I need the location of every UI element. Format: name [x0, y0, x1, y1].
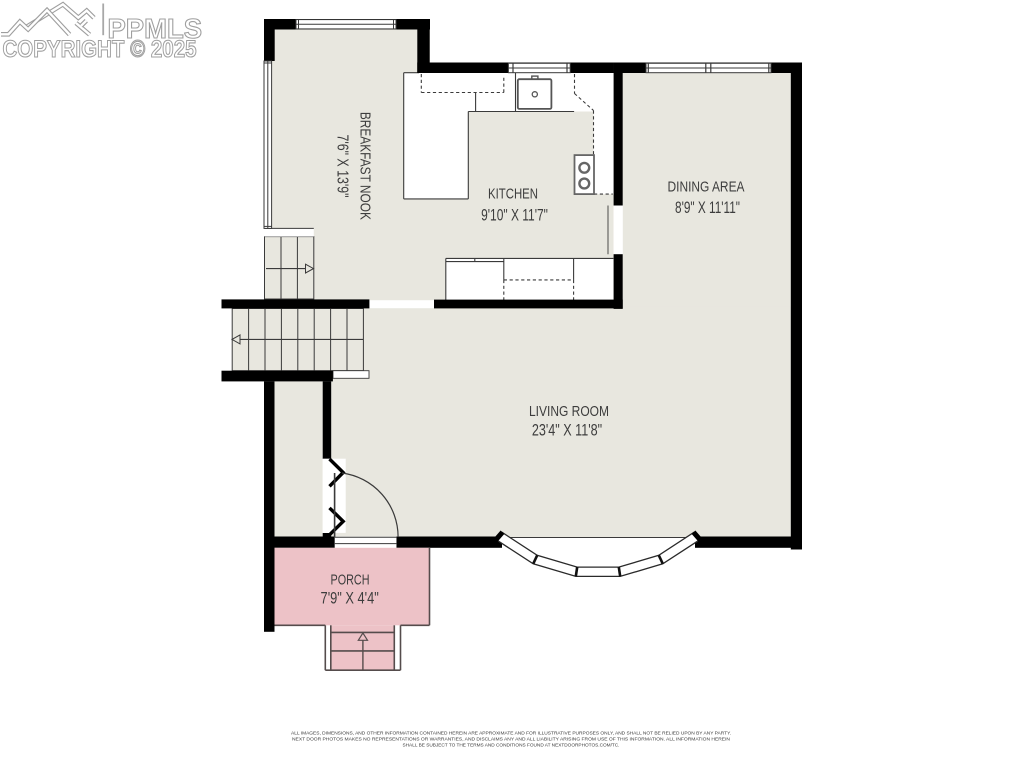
svg-text:LIVING ROOM: LIVING ROOM: [529, 403, 609, 420]
svg-text:SHALL BE SUBJECT TO THE TERMS: SHALL BE SUBJECT TO THE TERMS AND CONDIT…: [403, 743, 620, 749]
svg-text:ALL IMAGES, DIMENSIONS, AND OT: ALL IMAGES, DIMENSIONS, AND OTHER INFORM…: [291, 730, 731, 736]
svg-text:BREAKFAST NOOK: BREAKFAST NOOK: [357, 112, 374, 220]
svg-text:7'9" X 4'4": 7'9" X 4'4": [321, 590, 379, 608]
svg-text:7'6" X 13'9": 7'6" X 13'9": [334, 135, 351, 198]
svg-text:9'10" X 11'7": 9'10" X 11'7": [481, 207, 548, 225]
svg-text:COPYRIGHT © 2025: COPYRIGHT © 2025: [3, 36, 197, 63]
svg-text:PORCH: PORCH: [331, 571, 370, 588]
svg-text:8'9" X 11'11": 8'9" X 11'11": [675, 199, 740, 217]
svg-text:NEXT DOOR PHOTOS MAKES NO REPR: NEXT DOOR PHOTOS MAKES NO REPRESENTATION…: [292, 737, 730, 743]
svg-text:DINING AREA: DINING AREA: [668, 179, 745, 196]
svg-text:23'4" X 11'8": 23'4" X 11'8": [532, 422, 602, 440]
svg-text:KITCHEN: KITCHEN: [488, 186, 538, 203]
